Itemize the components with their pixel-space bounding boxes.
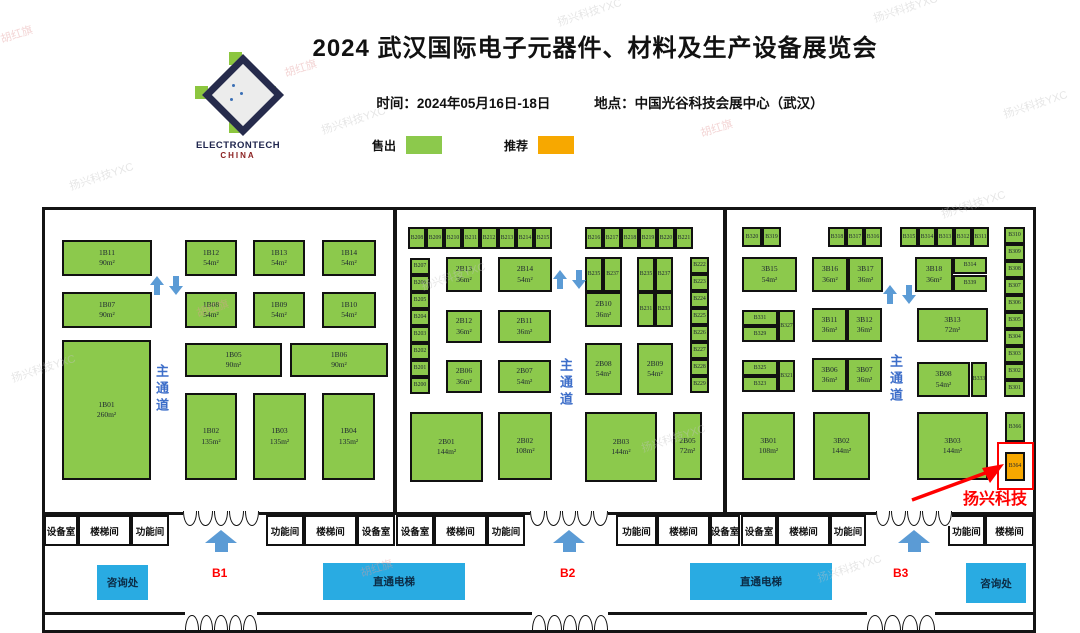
booth-3B02: 3B02144m² bbox=[813, 412, 870, 480]
booth-B329: B329 bbox=[742, 326, 778, 342]
booth-B366: B366 bbox=[1005, 412, 1025, 442]
booth-B225: B225 bbox=[690, 308, 709, 325]
booth-2B02: 2B02108m² bbox=[498, 412, 552, 480]
gate-scallops bbox=[183, 511, 259, 526]
gate-scallops bbox=[532, 615, 608, 630]
booth-B212: B212 bbox=[480, 227, 498, 249]
booth-B207: B207 bbox=[410, 258, 430, 275]
booth-1B03: 1B03135m² bbox=[253, 393, 306, 480]
booth-3B08: 3B0854m² bbox=[917, 362, 970, 397]
booth-B305: B305 bbox=[1004, 312, 1025, 329]
booth-2B06: 2B0636m² bbox=[446, 360, 482, 393]
booth-B301: B301 bbox=[1004, 380, 1025, 397]
booth-1B09: 1B0954m² bbox=[253, 292, 305, 328]
booth-1B06: 1B0690m² bbox=[290, 343, 388, 377]
booth-B325: B325 bbox=[742, 360, 778, 376]
entrance-arrow-up bbox=[898, 530, 930, 552]
highlight-company-label: 扬兴科技 bbox=[963, 485, 1027, 509]
booth-3B11: 3B1136m² bbox=[812, 308, 847, 342]
room-楼梯间: 楼梯间 bbox=[657, 515, 710, 546]
booth-B233: B233 bbox=[655, 292, 673, 327]
booth-3B13: 3B1372m² bbox=[917, 308, 988, 342]
wall bbox=[1033, 207, 1036, 631]
booth-B310: B310 bbox=[1004, 227, 1025, 244]
booth-B204: B204 bbox=[410, 309, 430, 326]
booth-B235: B235 bbox=[585, 257, 603, 292]
booth-3B01: 3B01108m² bbox=[742, 412, 795, 480]
wall bbox=[42, 207, 1036, 210]
booth-B220: B220 bbox=[657, 227, 675, 249]
booth-B209: B209 bbox=[426, 227, 444, 249]
booth-B237: B237 bbox=[603, 257, 622, 292]
gate-label-B1: B1 bbox=[212, 566, 227, 580]
booth-B214: B214 bbox=[516, 227, 534, 249]
info-desk: 咨询处 bbox=[97, 565, 148, 600]
booth-B327: B327 bbox=[778, 310, 795, 342]
booth-3B12: 3B1236m² bbox=[847, 308, 882, 342]
booth-B211: B211 bbox=[462, 227, 480, 249]
highlight-box bbox=[997, 442, 1034, 490]
booth-B201: B201 bbox=[410, 360, 430, 377]
booth-1B02: 1B02135m² bbox=[185, 393, 237, 480]
booth-1B10: 1B1054m² bbox=[322, 292, 376, 328]
booth-B314: B314 bbox=[953, 257, 987, 274]
booth-B314: B314 bbox=[918, 227, 936, 247]
booth-B316: B316 bbox=[864, 227, 882, 247]
booth-1B14: 1B1454m² bbox=[322, 240, 376, 276]
booth-B205: B205 bbox=[410, 292, 430, 309]
booth-B315: B315 bbox=[900, 227, 918, 247]
booth-B317: B317 bbox=[846, 227, 864, 247]
booth-B208: B208 bbox=[408, 227, 426, 249]
booth-B216: B216 bbox=[585, 227, 603, 249]
room-功能间: 功能间 bbox=[616, 515, 657, 546]
wall bbox=[393, 207, 397, 515]
booth-2B05: 2B0572m² bbox=[673, 412, 702, 480]
room-设备室: 设备室 bbox=[357, 515, 395, 546]
booth-2B11: 2B1136m² bbox=[498, 310, 551, 343]
booth-1B13: 1B1354m² bbox=[253, 240, 305, 276]
room-楼梯间: 楼梯间 bbox=[78, 515, 131, 546]
booth-B202: B202 bbox=[410, 343, 430, 360]
updown-arrows bbox=[553, 270, 586, 289]
booth-2B07: 2B0754m² bbox=[498, 360, 551, 393]
booth-2B03: 2B03144m² bbox=[585, 412, 657, 482]
booth-1B01: 1B01260m² bbox=[62, 340, 151, 480]
room-设备室: 设备室 bbox=[396, 515, 434, 546]
booth-B311: B311 bbox=[972, 227, 989, 247]
booth-B331: B331 bbox=[742, 310, 778, 326]
booth-B320: B320 bbox=[742, 227, 762, 247]
elevator: 直通电梯 bbox=[323, 563, 465, 600]
booth-B304: B304 bbox=[1004, 329, 1025, 346]
booth-B217: B217 bbox=[603, 227, 621, 249]
booth-1B08: 1B0854m² bbox=[185, 292, 237, 328]
exhibition-floor-plan-page: 2024 武汉国际电子元器件、材料及生产设备展览会 时间：2024年05月16日… bbox=[0, 0, 1080, 633]
room-楼梯间: 楼梯间 bbox=[434, 515, 487, 546]
booth-1B11: 1B1190m² bbox=[62, 240, 152, 276]
booth-B323: B323 bbox=[742, 376, 778, 392]
room-楼梯间: 楼梯间 bbox=[985, 515, 1034, 546]
room-楼梯间: 楼梯间 bbox=[777, 515, 830, 546]
booth-B200: B200 bbox=[410, 377, 430, 394]
booth-3B07: 3B0736m² bbox=[847, 358, 882, 392]
booth-B218: B218 bbox=[621, 227, 639, 249]
booth-1B07: 1B0790m² bbox=[62, 292, 152, 328]
room-设备室: 设备室 bbox=[44, 515, 78, 546]
main-aisle-label: 主通道 bbox=[152, 364, 171, 415]
gate-scallops bbox=[185, 615, 257, 630]
booth-B306: B306 bbox=[1004, 295, 1025, 312]
booth-B213: B213 bbox=[498, 227, 516, 249]
booth-3B06: 3B0636m² bbox=[812, 358, 847, 392]
booth-B235: B235 bbox=[637, 257, 655, 292]
updown-arrows bbox=[150, 276, 183, 295]
booth-B339: B339 bbox=[953, 275, 987, 292]
gate-scallops bbox=[876, 511, 952, 526]
booth-B308: B308 bbox=[1004, 261, 1025, 278]
booth-B333: B333 bbox=[971, 362, 987, 397]
booth-B237: B237 bbox=[655, 257, 673, 292]
entrance-arrow-up bbox=[553, 530, 585, 552]
booth-B318: B318 bbox=[828, 227, 846, 247]
booth-2B08: 2B0854m² bbox=[585, 343, 622, 395]
gate-label-B3: B3 bbox=[893, 566, 908, 580]
booth-2B09: 2B0954m² bbox=[637, 343, 673, 395]
room-功能间: 功能间 bbox=[948, 515, 985, 546]
booth-1B04: 1B04135m² bbox=[322, 393, 375, 480]
gate-scallops bbox=[530, 511, 608, 526]
wall bbox=[42, 207, 45, 631]
booth-B319: B319 bbox=[762, 227, 781, 247]
wall bbox=[723, 207, 727, 515]
info-desk: 咨询处 bbox=[966, 563, 1026, 603]
gate-scallops bbox=[867, 615, 935, 630]
wall bbox=[608, 612, 867, 615]
room-功能间: 功能间 bbox=[830, 515, 866, 546]
booth-B203: B203 bbox=[410, 326, 430, 343]
gate-label-B2: B2 bbox=[560, 566, 575, 580]
main-aisle-label: 主通道 bbox=[886, 354, 905, 405]
booth-2B13: 2B1336m² bbox=[446, 257, 482, 292]
booth-3B15: 3B1554m² bbox=[742, 257, 797, 292]
room-楼梯间: 楼梯间 bbox=[304, 515, 357, 546]
entrance-arrow-up bbox=[205, 530, 237, 552]
booth-B226: B226 bbox=[690, 325, 709, 342]
booth-B222: B222 bbox=[690, 257, 709, 274]
booth-3B16: 3B1636m² bbox=[812, 257, 848, 292]
booth-B313: B313 bbox=[936, 227, 954, 247]
wall bbox=[257, 612, 532, 615]
booth-B307: B307 bbox=[1004, 278, 1025, 295]
booth-B229: B229 bbox=[690, 376, 709, 393]
booth-3B03: 3B03144m² bbox=[917, 412, 988, 480]
booth-B228: B228 bbox=[690, 359, 709, 376]
booth-B219: B219 bbox=[639, 227, 657, 249]
booth-1B12: 1B1254m² bbox=[185, 240, 237, 276]
booth-B302: B302 bbox=[1004, 363, 1025, 380]
room-功能间: 功能间 bbox=[487, 515, 525, 546]
floor-plan: 扬兴科技 1B1190m²1B1254m²1B1354m²1B1454m²1B0… bbox=[0, 0, 1080, 633]
booth-3B18: 3B1836m² bbox=[915, 257, 953, 292]
booth-B223: B223 bbox=[690, 274, 709, 291]
booth-3B17: 3B1736m² bbox=[848, 257, 883, 292]
room-功能间: 功能间 bbox=[266, 515, 304, 546]
booth-2B10: 2B1036m² bbox=[585, 292, 622, 327]
booth-B215: B215 bbox=[534, 227, 552, 249]
booth-B309: B309 bbox=[1004, 244, 1025, 261]
main-aisle-label: 主通道 bbox=[556, 358, 575, 409]
booth-2B01: 2B01144m² bbox=[410, 412, 483, 482]
booth-B227: B227 bbox=[690, 342, 709, 359]
booth-B303: B303 bbox=[1004, 346, 1025, 363]
booth-B224: B224 bbox=[690, 291, 709, 308]
booth-B221: B221 bbox=[675, 227, 693, 249]
elevator: 直通电梯 bbox=[690, 563, 832, 600]
wall bbox=[42, 612, 185, 615]
room-设备室: 设备室 bbox=[741, 515, 777, 546]
booth-B231: B231 bbox=[637, 292, 655, 327]
booth-1B05: 1B0590m² bbox=[185, 343, 282, 377]
booth-B321: B321 bbox=[778, 360, 795, 392]
wall bbox=[935, 612, 1036, 615]
room-功能间: 功能间 bbox=[131, 515, 169, 546]
booth-B210: B210 bbox=[444, 227, 462, 249]
room-设备室: 设备室 bbox=[710, 515, 740, 546]
booth-2B14: 2B1454m² bbox=[498, 257, 552, 292]
booth-B206: B206 bbox=[410, 275, 430, 292]
booth-2B12: 2B1236m² bbox=[446, 310, 482, 343]
booth-B312: B312 bbox=[954, 227, 972, 247]
updown-arrows bbox=[883, 285, 916, 304]
